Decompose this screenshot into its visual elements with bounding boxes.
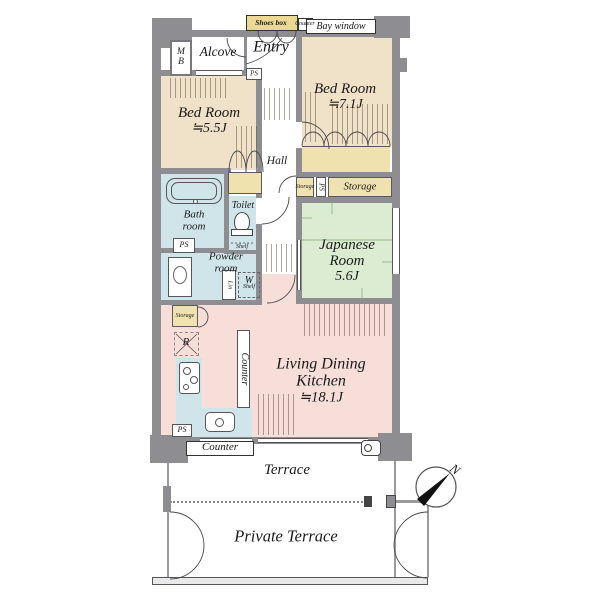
- ps-bottom-label: PS: [178, 426, 187, 434]
- ps-left-label: PS: [180, 241, 189, 249]
- burner: [183, 384, 189, 390]
- wall: [296, 197, 396, 203]
- bedroom-a-label: Bed Room≒5.5J: [178, 106, 240, 136]
- ceiling-hatch: [266, 244, 294, 272]
- outdoor-faucet-icon: [361, 440, 381, 456]
- storage-left-label: Storage: [176, 313, 195, 319]
- closet-bedroom-a: [228, 172, 262, 194]
- wall: [399, 58, 407, 72]
- terrace-label: Terrace: [264, 463, 310, 479]
- toilet-label: Toilet: [232, 201, 254, 212]
- shoes-box-label: Shoes box: [255, 19, 286, 27]
- room-ldk-corridor: [262, 274, 296, 308]
- washer-shelf-label: WShelf: [243, 276, 255, 290]
- ps-mid-label: PS: [317, 183, 324, 191]
- divider-post: [364, 496, 372, 507]
- toilet-tank-icon: [231, 229, 253, 236]
- terrace-side-line: [394, 458, 396, 577]
- window: [392, 208, 400, 274]
- toilet-shelf-label: Shelf: [236, 244, 248, 250]
- linen-label: Lin: [226, 281, 233, 290]
- sink-drain: [215, 418, 224, 427]
- burner: [190, 376, 198, 384]
- counter-kitchen-label: Counter: [238, 353, 249, 386]
- gate-right-arcs: [394, 512, 428, 578]
- powder-room-label: Powderroom: [209, 251, 243, 274]
- stove-icon: [179, 362, 200, 394]
- faucet-knob: [364, 444, 372, 452]
- wall-pillar: [150, 435, 188, 463]
- bedroom-b-label: Bed Room≒7.1J: [314, 82, 376, 112]
- bathroom-label: Bathroom: [183, 209, 206, 232]
- wall: [190, 30, 306, 37]
- japanese-room-label: JapaneseRoom5.6J: [319, 238, 375, 284]
- storage-small-label: Storage: [296, 184, 315, 190]
- washbasin-bowl: [173, 266, 187, 284]
- bathtub-inner: [171, 182, 217, 200]
- sliding-door-japanese: [297, 240, 301, 290]
- washbasin-icon: [168, 257, 192, 297]
- wall: [161, 168, 231, 174]
- ceiling-hatch: [304, 304, 388, 336]
- wall: [296, 30, 302, 122]
- terrace-side-line: [427, 503, 429, 577]
- wall-pillar: [378, 433, 412, 461]
- sink-icon: [205, 412, 235, 432]
- ldk-label: Living DiningKitchen≒18.1J: [276, 357, 365, 406]
- refrigerator-label: R: [183, 337, 190, 349]
- alcove-label: Alcove: [200, 45, 237, 59]
- gate-left-arcs: [170, 512, 204, 579]
- hall-label: Hall: [267, 155, 287, 167]
- floor-plan: N Shoes box Counter Bay window MB Alcove…: [0, 0, 600, 600]
- bay-window-label: Bay window: [316, 22, 365, 33]
- closet-bedroom-b: [302, 146, 390, 172]
- terrace-wall-block: [163, 486, 171, 512]
- counter-terrace-label: Counter: [202, 442, 238, 454]
- entry-label: Entry: [253, 40, 289, 57]
- terrace-side-line: [167, 456, 169, 577]
- burner: [183, 367, 191, 375]
- private-terrace-label: Private Terrace: [234, 527, 337, 544]
- storage-main-label: Storage: [344, 181, 377, 192]
- shoes-counter-label: Counter: [295, 21, 315, 27]
- bathtub-drain: [193, 199, 198, 204]
- north-label: N: [446, 460, 464, 479]
- terrace-divider-dotted: [170, 501, 366, 503]
- ceiling-hatch: [264, 88, 294, 120]
- ps-entry-label: PS: [250, 70, 258, 77]
- bathtub-icon: [166, 178, 222, 204]
- wall: [152, 30, 161, 444]
- divider-post: [386, 495, 396, 508]
- terrace-base: [152, 577, 428, 585]
- door-opening: [256, 198, 262, 224]
- meter-box-label: MB: [177, 48, 185, 68]
- ceiling-hatch: [170, 78, 228, 98]
- window: [196, 70, 242, 76]
- window-sliding-door: [258, 438, 368, 443]
- wall: [244, 33, 247, 70]
